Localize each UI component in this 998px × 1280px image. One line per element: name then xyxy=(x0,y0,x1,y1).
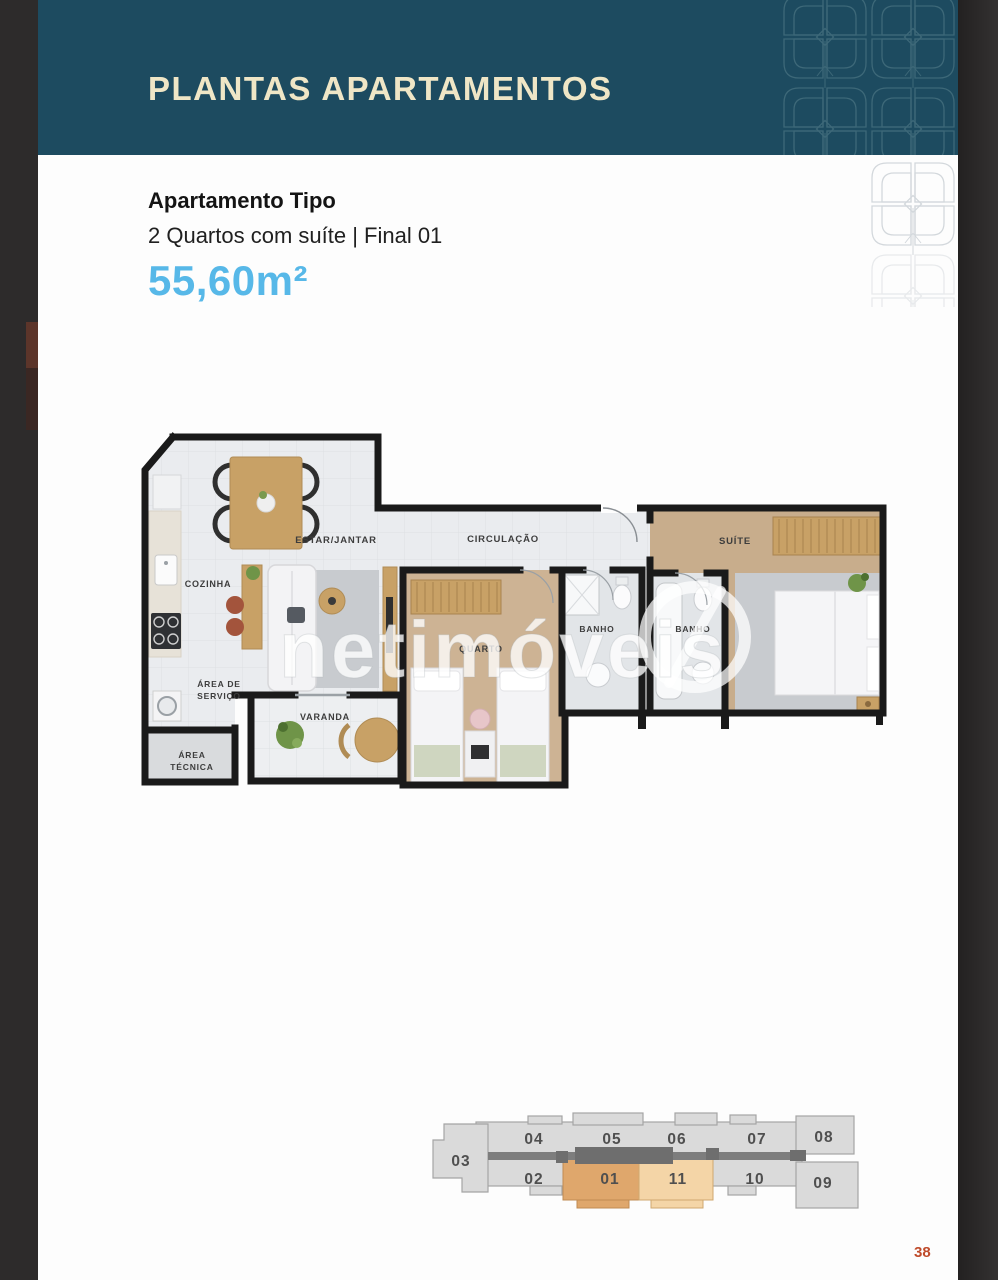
label-circulacao: CIRCULAÇÃO xyxy=(467,534,539,545)
unit-label-11: 11 xyxy=(669,1171,687,1188)
unit-label-03: 03 xyxy=(451,1153,470,1170)
unit-label-06: 06 xyxy=(667,1131,686,1148)
label-varanda: VARANDA xyxy=(300,712,350,722)
viewer-margin-left xyxy=(0,0,38,1280)
building-key-plan: 03 04 05 06 07 08 02 01 11 10 09 xyxy=(430,1100,870,1220)
apartment-type-label: Apartamento Tipo xyxy=(148,188,958,214)
label-area-servico-2: SERVIÇO xyxy=(197,691,241,701)
unit-label-08: 08 xyxy=(814,1129,833,1146)
label-cozinha: COZINHA xyxy=(185,579,232,589)
watermark-text: netimóveis xyxy=(279,605,727,694)
decorative-flower-pattern-header xyxy=(780,0,958,155)
apartment-subtitle: 2 Quartos com suíte | Final 01 xyxy=(148,223,958,249)
unit-label-04: 04 xyxy=(524,1131,543,1148)
unit-label-10: 10 xyxy=(745,1171,764,1188)
unit-label-01: 01 xyxy=(600,1171,619,1188)
unit-label-05: 05 xyxy=(602,1131,621,1148)
viewer-margin-right xyxy=(958,0,998,1280)
page-header: PLANTAS APARTAMENTOS xyxy=(38,0,958,155)
label-area-tecnica-1: ÁREA xyxy=(178,750,205,760)
label-area-servico-1: ÁREA DE xyxy=(197,679,241,689)
page-number: 38 xyxy=(914,1244,931,1261)
unit-label-02: 02 xyxy=(524,1171,543,1188)
brochure-page: PLANTAS APARTAMENTOS xyxy=(38,0,958,1280)
highlighted-units xyxy=(563,1158,713,1208)
apartment-info: Apartamento Tipo 2 Quartos com suíte | F… xyxy=(148,188,958,305)
unit-label-09: 09 xyxy=(813,1175,832,1192)
floor-plan: COZINHA ESTAR/JANTAR CIRCULAÇÃO SUÍTE BA… xyxy=(135,425,910,795)
adjacent-page-peek-fade xyxy=(26,368,38,430)
adjacent-page-peek xyxy=(26,322,38,368)
label-area-tecnica-2: TÉCNICA xyxy=(170,762,213,772)
label-estar-jantar: ESTAR/JANTAR xyxy=(295,535,377,546)
unit-label-07: 07 xyxy=(747,1131,766,1148)
apartment-area: 55,60m² xyxy=(148,257,958,305)
viewer-canvas: PLANTAS APARTAMENTOS xyxy=(0,0,998,1280)
label-suite: SUÍTE xyxy=(719,536,751,547)
